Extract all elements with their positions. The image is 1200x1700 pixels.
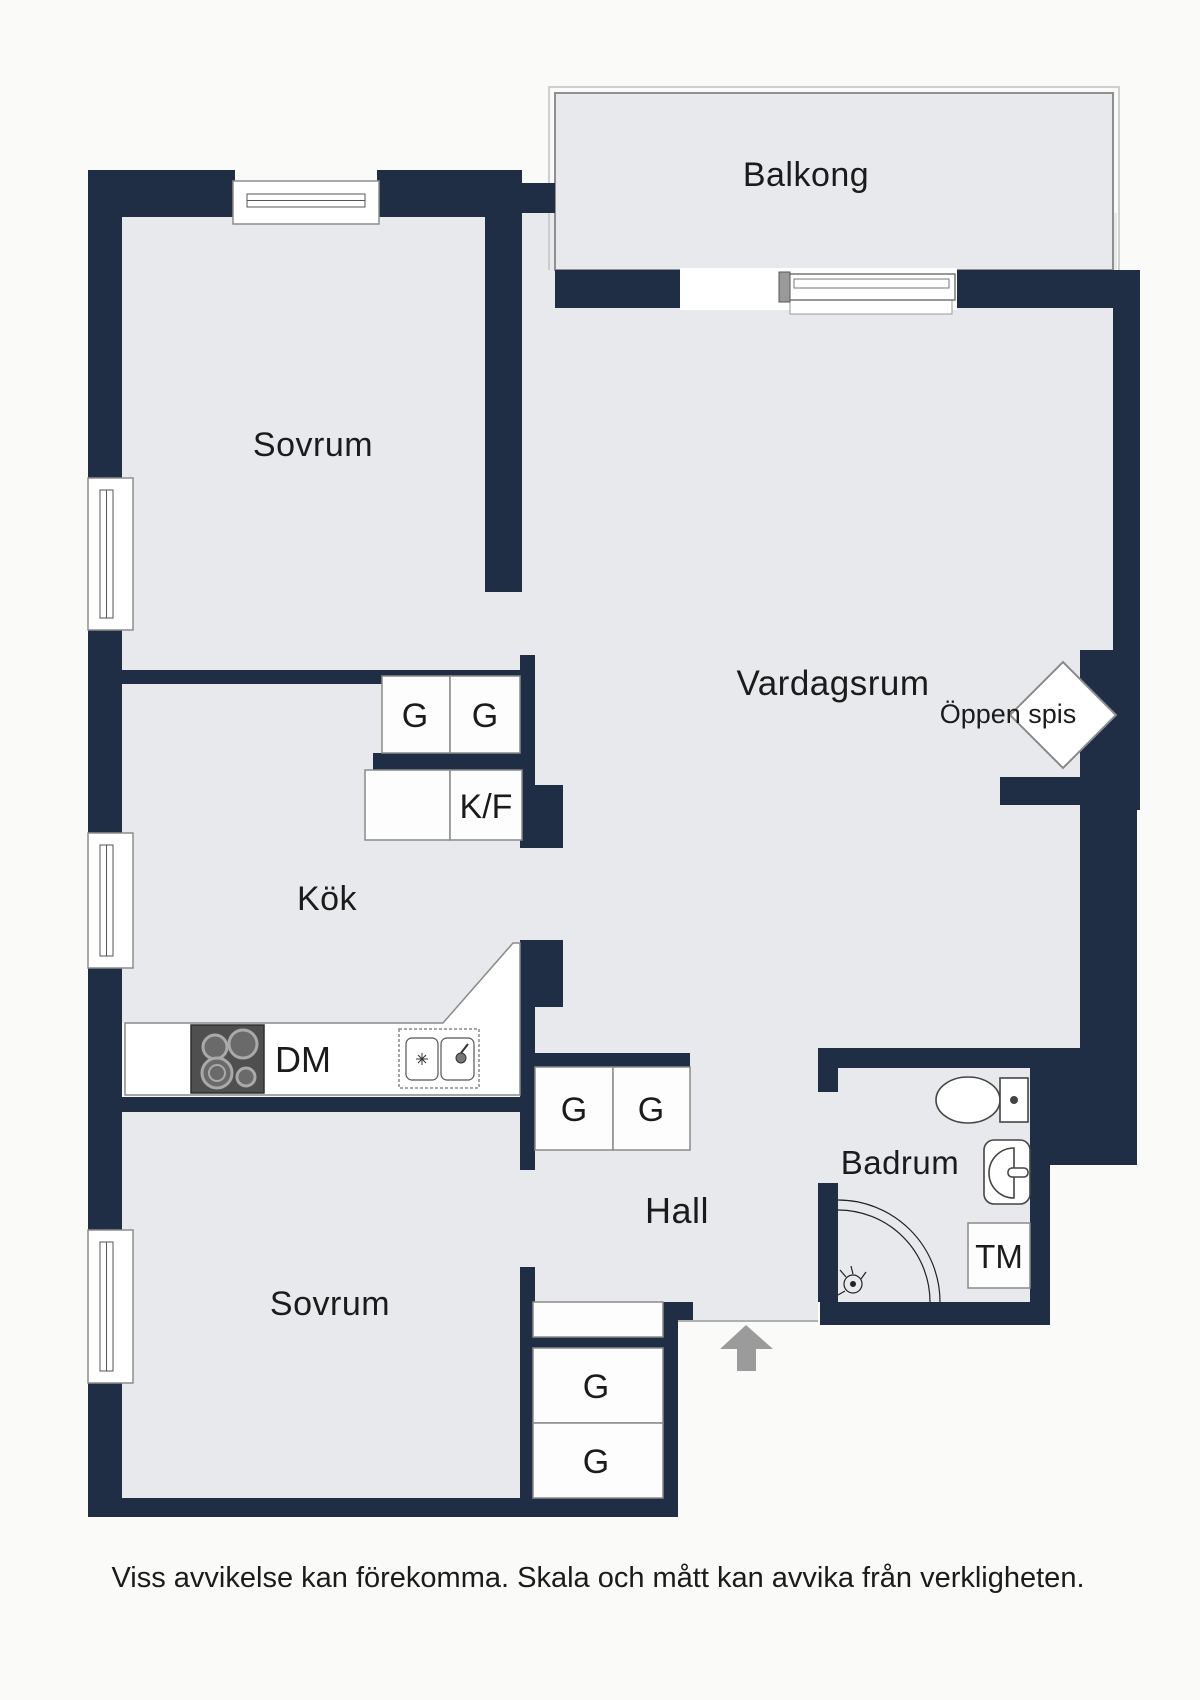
label-bathroom: Badrum	[841, 1144, 960, 1181]
label-wardrobe: G	[402, 697, 428, 735]
wall-segment	[1113, 270, 1140, 660]
kitchen-sink	[399, 1029, 479, 1088]
wall-segment	[1030, 1165, 1050, 1325]
burner	[229, 1030, 257, 1058]
wall-segment	[818, 1183, 838, 1302]
flush-button	[1010, 1096, 1018, 1104]
burner	[202, 1058, 232, 1088]
wall-segment	[555, 270, 680, 308]
door-jamb	[779, 272, 790, 302]
wall-segment	[88, 1498, 678, 1517]
wall-segment	[88, 170, 235, 217]
label-dishwasher: DM	[275, 1039, 331, 1080]
label-fridge-freezer: K/F	[460, 788, 513, 826]
burner	[203, 1035, 227, 1059]
bedroom-top-door-opening	[485, 592, 522, 670]
window-top	[233, 181, 379, 224]
stove	[191, 1025, 264, 1093]
toilet	[936, 1077, 1028, 1123]
living-room-floor	[520, 213, 1117, 1048]
disclaimer-text: Viss avvikelse kan förekomma. Skala och …	[111, 1562, 1084, 1594]
wall-segment	[535, 1053, 690, 1067]
window-left-bedroom-top	[88, 478, 133, 630]
faucet	[456, 1053, 466, 1063]
window-left-bedroom-bottom	[88, 1230, 133, 1383]
label-wardrobe: G	[583, 1443, 609, 1481]
floor-plan-page: Balkong Sovrum Vardagsrum Öppen spis Kök…	[0, 0, 1200, 1700]
wall-segment	[1030, 1068, 1137, 1165]
wall-segment	[818, 1048, 1080, 1068]
wall-segment	[485, 217, 522, 592]
niche-box	[533, 1302, 663, 1337]
wall-segment	[818, 1048, 838, 1092]
wall-segment	[373, 753, 522, 770]
wall-segment	[520, 1007, 535, 1170]
wall-segment	[522, 183, 555, 213]
wall-segment	[520, 1337, 663, 1348]
wall-segment	[88, 968, 122, 1230]
wall-segment	[535, 785, 563, 848]
label-balcony: Balkong	[743, 156, 869, 194]
label-bedroom-top: Sovrum	[253, 426, 373, 464]
label-wardrobe: G	[472, 697, 498, 735]
balcony-door	[680, 268, 957, 314]
label-bedroom-bottom: Sovrum	[270, 1285, 390, 1323]
label-wardrobe: G	[638, 1091, 664, 1129]
burner	[237, 1068, 255, 1086]
cabinet-box	[365, 770, 450, 840]
bathroom-door-opening	[818, 1092, 838, 1183]
wall-segment	[88, 1383, 122, 1517]
label-living-room: Vardagsrum	[736, 664, 929, 703]
shower-head-center	[850, 1281, 856, 1287]
wall-segment	[820, 1302, 1050, 1325]
wall-segment	[88, 630, 122, 833]
label-kitchen: Kök	[297, 880, 358, 918]
label-open-fireplace: Öppen spis	[940, 699, 1077, 729]
wall-segment	[1000, 777, 1090, 805]
label-wardrobe: G	[561, 1091, 587, 1129]
window-left-kitchen	[88, 833, 133, 968]
wall-segment	[663, 1302, 693, 1322]
wall-segment	[122, 1097, 522, 1112]
wall-segment	[88, 217, 122, 478]
bathroom-sink	[984, 1140, 1030, 1204]
label-washing-machine: TM	[975, 1238, 1023, 1275]
wall-segment	[377, 170, 522, 217]
label-wardrobe: G	[583, 1368, 609, 1406]
label-hall: Hall	[645, 1190, 709, 1231]
floor-plan-drawing: Balkong Sovrum Vardagsrum Öppen spis Kök…	[0, 0, 1200, 1700]
wall-segment	[957, 270, 1113, 308]
wall-segment	[663, 1302, 678, 1517]
wall-segment	[520, 940, 563, 1007]
